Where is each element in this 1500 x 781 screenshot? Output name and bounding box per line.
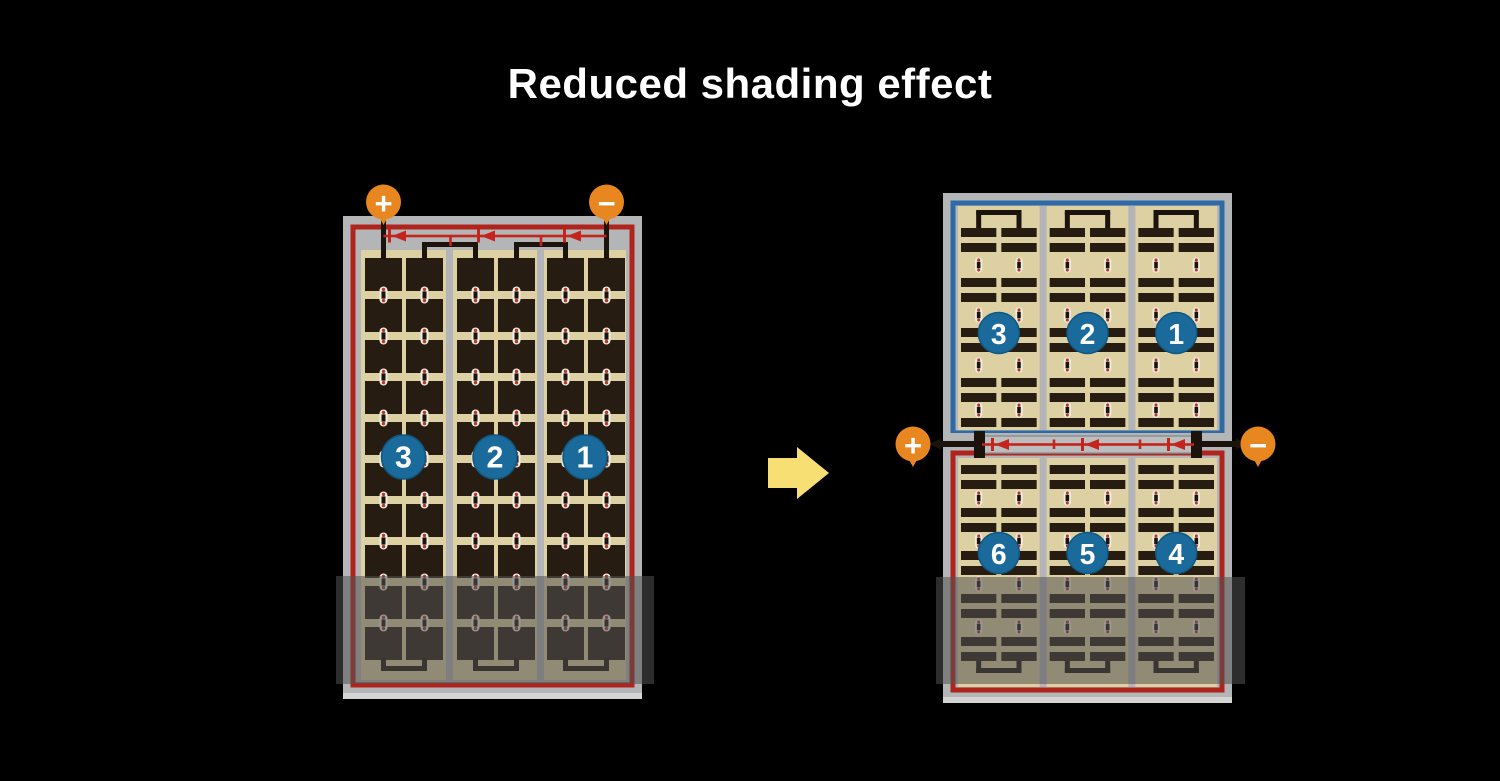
half-cell-bar	[1090, 418, 1125, 427]
terminal-lead	[941, 441, 975, 447]
string-number: 1	[577, 442, 594, 475]
half-cell-bar	[961, 508, 996, 517]
cell-contact	[421, 328, 429, 345]
half-cell-bar	[1001, 378, 1036, 387]
diode-tap	[1139, 440, 1142, 450]
half-cell-bar	[1179, 228, 1214, 237]
cell-contact	[1015, 402, 1022, 417]
solar-cell	[406, 381, 443, 414]
solar-cell	[588, 381, 625, 414]
half-cell-bar	[961, 418, 996, 427]
half-cell-bar	[1050, 465, 1085, 474]
cell-contact	[421, 492, 429, 509]
solar-cell	[588, 545, 625, 578]
lead-tip	[929, 439, 941, 450]
cell-contact	[472, 369, 480, 386]
solar-cell	[498, 381, 535, 414]
cell-contact	[472, 410, 480, 427]
cell-contact	[1064, 490, 1071, 505]
half-cell-bar	[1138, 293, 1173, 302]
half-cell-bar	[1179, 508, 1214, 517]
diode-tap	[1053, 440, 1056, 450]
solar-cell	[457, 258, 494, 291]
solar-cell	[498, 258, 535, 291]
half-cell-bar	[1138, 418, 1173, 427]
cell-contact	[603, 287, 611, 304]
frame-bevel	[943, 697, 1232, 703]
cell-contact	[1104, 307, 1111, 322]
terminal-symbol: +	[374, 186, 392, 221]
cell-contact	[513, 492, 521, 509]
solar-cell	[457, 299, 494, 332]
solar-cell	[457, 545, 494, 578]
diode-tap	[540, 236, 543, 246]
half-cell-bar	[961, 243, 996, 252]
half-cell-bar	[1179, 480, 1214, 489]
cell-contact	[380, 328, 388, 345]
diode-tap	[449, 236, 452, 246]
cell-contact	[603, 369, 611, 386]
terminal-symbol: −	[1249, 428, 1267, 463]
solar-cell	[457, 340, 494, 373]
solar-cell	[457, 504, 494, 537]
cell-contact	[1152, 257, 1159, 272]
string-badge-5: 5	[1067, 533, 1108, 574]
cell-contact	[562, 287, 570, 304]
string-badge-2: 2	[1067, 313, 1108, 354]
half-cell-bar	[1090, 465, 1125, 474]
cell-contact	[421, 533, 429, 550]
solar-cell	[406, 299, 443, 332]
frame-bevel	[343, 693, 642, 699]
half-cell-bar	[1001, 465, 1036, 474]
cell-contact	[1193, 402, 1200, 417]
half-cell-bar	[1138, 393, 1173, 402]
half-cell-bar	[1179, 393, 1214, 402]
half-cell-bar	[1179, 293, 1214, 302]
half-cell-bar	[1050, 480, 1085, 489]
half-cell-bar	[1138, 228, 1173, 237]
string-number: 3	[395, 442, 412, 475]
half-cell-bar	[961, 480, 996, 489]
terminal-symbol: +	[904, 428, 922, 463]
cell-contact	[513, 328, 521, 345]
half-cell-bar	[961, 393, 996, 402]
solar-cell	[498, 545, 535, 578]
half-cell-bar	[1050, 378, 1085, 387]
cell-contact	[1104, 357, 1111, 372]
solar-cell	[547, 299, 584, 332]
half-cell-bar	[1001, 228, 1036, 237]
cell-contact	[380, 533, 388, 550]
cell-contact	[562, 492, 570, 509]
cell-contact	[562, 410, 570, 427]
cell-contact	[472, 328, 480, 345]
solar-cell	[406, 504, 443, 537]
half-cell-bar	[1179, 465, 1214, 474]
string-badge-6: 6	[978, 533, 1019, 574]
shade-overlay	[936, 577, 1245, 684]
half-cell-bar	[1001, 393, 1036, 402]
half-cell-bar	[1090, 228, 1125, 237]
solar-cell	[547, 545, 584, 578]
half-cell-bar	[961, 378, 996, 387]
cell-contact	[562, 533, 570, 550]
terminal-lead	[1202, 441, 1236, 447]
string-number: 2	[1080, 318, 1096, 350]
solar-cell	[547, 340, 584, 373]
string-number: 4	[1168, 538, 1184, 570]
half-cell-bar	[961, 465, 996, 474]
half-cell-bar	[1050, 278, 1085, 287]
half-cell-bar	[961, 278, 996, 287]
cell-contact	[562, 369, 570, 386]
string-badge-4: 4	[1156, 533, 1197, 574]
half-cell-bar	[1001, 508, 1036, 517]
half-cell-bar	[961, 228, 996, 237]
cell-contact	[472, 533, 480, 550]
solar-cell	[547, 258, 584, 291]
cell-contact	[975, 490, 982, 505]
cell-contact	[603, 328, 611, 345]
infographic-canvas: Reduced shading effect 321+−321654+−	[0, 0, 1500, 781]
half-cell-bar	[1001, 243, 1036, 252]
cell-contact	[1104, 402, 1111, 417]
solar-cell	[365, 545, 402, 578]
cell-contact	[975, 357, 982, 372]
solar-cell	[588, 299, 625, 332]
half-cell-bar	[1090, 480, 1125, 489]
half-cell-bar	[1001, 293, 1036, 302]
half-cell-bar	[1138, 378, 1173, 387]
cell-contact	[603, 410, 611, 427]
cell-contact	[1015, 307, 1022, 322]
cell-contact	[513, 533, 521, 550]
half-cell-bar	[1138, 480, 1173, 489]
cell-contact	[1152, 307, 1159, 322]
half-cell-bar	[1179, 418, 1214, 427]
cell-contact	[421, 410, 429, 427]
half-cell-bar	[1138, 243, 1173, 252]
cell-contact	[1015, 357, 1022, 372]
cell-contact	[1193, 490, 1200, 505]
cell-contact	[1193, 257, 1200, 272]
right-top-module: 321	[943, 193, 1232, 440]
half-cell-bar	[1138, 465, 1173, 474]
half-cell-bar	[1138, 508, 1173, 517]
half-cell-bar	[1001, 418, 1036, 427]
half-cell-bar	[1001, 523, 1036, 532]
half-cell-bar	[1138, 523, 1173, 532]
shade-overlay	[336, 576, 654, 684]
cell-contact	[1193, 307, 1200, 322]
half-cell-bar	[1179, 523, 1214, 532]
cell-contact	[513, 369, 521, 386]
cell-contact	[380, 410, 388, 427]
solar-cell	[457, 381, 494, 414]
half-cell-bar	[1001, 480, 1036, 489]
string-number: 6	[991, 538, 1007, 570]
solar-cell	[365, 299, 402, 332]
cell-contact	[975, 402, 982, 417]
cell-contact	[1064, 307, 1071, 322]
positive-terminal: +	[896, 427, 931, 468]
solar-cell	[588, 504, 625, 537]
cell-contact	[975, 257, 982, 272]
cell-contact	[472, 287, 480, 304]
half-cell-bar	[1050, 508, 1085, 517]
solar-cell	[365, 381, 402, 414]
solar-cell	[547, 381, 584, 414]
half-cell-bar	[1179, 278, 1214, 287]
half-cell-bar	[1090, 393, 1125, 402]
solar-cell	[588, 258, 625, 291]
cell-contact	[1064, 402, 1071, 417]
string-number: 2	[487, 442, 504, 475]
transform-arrow-icon	[768, 447, 829, 499]
solar-cell	[365, 504, 402, 537]
string-badge-1: 1	[1156, 313, 1197, 354]
cell-contact	[1104, 257, 1111, 272]
cell-contact	[513, 287, 521, 304]
shading-effect-diagram: 321+−321654+−	[0, 0, 1500, 781]
solar-cell	[406, 545, 443, 578]
solar-cell	[547, 504, 584, 537]
solar-cell	[365, 258, 402, 291]
terminal-symbol: −	[597, 186, 615, 221]
cell-contact	[1104, 490, 1111, 505]
half-cell-bar	[1050, 393, 1085, 402]
solar-cell	[406, 258, 443, 291]
string-divider	[1040, 206, 1047, 430]
half-cell-bar	[1050, 523, 1085, 532]
half-cell-bar	[1090, 378, 1125, 387]
cell-contact	[513, 410, 521, 427]
cell-contact	[380, 287, 388, 304]
solar-cell	[498, 504, 535, 537]
cell-contact	[1152, 357, 1159, 372]
half-cell-bar	[1138, 278, 1173, 287]
string-badge-2: 2	[473, 435, 517, 479]
half-cell-bar	[1090, 278, 1125, 287]
string-number: 3	[991, 318, 1007, 350]
cell-contact	[1152, 402, 1159, 417]
left-module: 321+−	[336, 185, 654, 700]
cell-contact	[1193, 357, 1200, 372]
string-badge-3: 3	[382, 435, 426, 479]
cell-contact	[421, 369, 429, 386]
string-number: 5	[1080, 538, 1096, 570]
cell-contact	[472, 492, 480, 509]
half-cell-bar	[1050, 243, 1085, 252]
cell-contact	[380, 369, 388, 386]
right-modules: 321654+−	[896, 193, 1276, 703]
cell-contact	[421, 287, 429, 304]
half-cell-bar	[1090, 243, 1125, 252]
solar-cell	[498, 340, 535, 373]
half-cell-bar	[1090, 293, 1125, 302]
half-cell-bar	[1050, 228, 1085, 237]
string-divider	[1128, 206, 1135, 430]
string-number: 1	[1168, 318, 1184, 350]
half-cell-bar	[1090, 523, 1125, 532]
cell-contact	[562, 328, 570, 345]
solar-cell	[406, 340, 443, 373]
half-cell-bar	[1090, 508, 1125, 517]
half-cell-bar	[1050, 418, 1085, 427]
cell-contact	[1015, 490, 1022, 505]
cell-contact	[1152, 490, 1159, 505]
solar-cell	[588, 340, 625, 373]
half-cell-bar	[1179, 378, 1214, 387]
cell-contact	[380, 492, 388, 509]
cell-contact	[603, 533, 611, 550]
half-cell-bar	[961, 523, 996, 532]
half-cell-bar	[961, 293, 996, 302]
string-badge-1: 1	[563, 435, 607, 479]
half-cell-bar	[1050, 293, 1085, 302]
half-cell-bar	[1179, 243, 1214, 252]
half-cell-bar	[1001, 278, 1036, 287]
negative-terminal: −	[1241, 427, 1276, 468]
cell-contact	[603, 492, 611, 509]
cell-contact	[1064, 257, 1071, 272]
string-badge-3: 3	[978, 313, 1019, 354]
cell-contact	[1064, 357, 1071, 372]
cell-contact	[975, 307, 982, 322]
solar-cell	[365, 340, 402, 373]
cell-contact	[1015, 257, 1022, 272]
solar-cell	[498, 299, 535, 332]
